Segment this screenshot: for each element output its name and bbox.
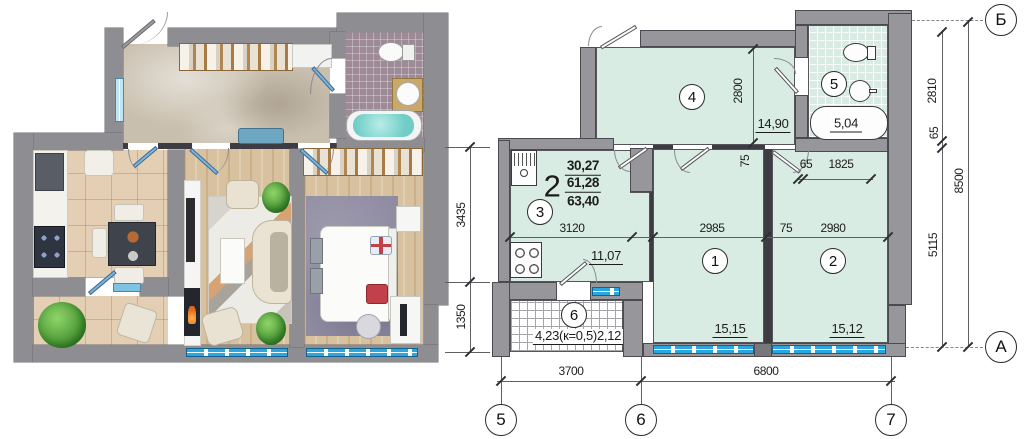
room2-width-label: 2980	[820, 222, 845, 234]
axis-5-circle: 5	[485, 404, 517, 436]
pillow-red	[366, 284, 388, 304]
right-total-dim-label: 8500	[953, 168, 965, 193]
balcony-window	[592, 287, 620, 296]
dimension-line	[470, 147, 471, 352]
room1-number: 1	[702, 248, 728, 274]
right-lower-dim-label: 5115	[927, 233, 939, 257]
dining-chair	[114, 204, 144, 221]
wall	[140, 278, 168, 296]
stool	[356, 314, 381, 339]
wall	[158, 143, 192, 149]
room2-number: 2	[820, 248, 846, 274]
bedroom-bench	[310, 238, 323, 264]
entry-door-leaf	[600, 25, 637, 50]
hallway-window	[115, 78, 124, 122]
wall	[33, 278, 85, 296]
bottom-right-dim-label: 6800	[753, 365, 778, 377]
dimension-line	[942, 30, 943, 347]
room2-window	[772, 345, 886, 354]
bathtub-water	[353, 114, 414, 137]
washbasin-tap	[869, 89, 877, 93]
axis-line-B	[912, 20, 983, 21]
fridge	[35, 153, 64, 191]
room6-number: 6	[561, 302, 587, 328]
hall-wall-label: 75	[739, 155, 751, 168]
nightstand	[396, 206, 421, 232]
room4-number: 4	[679, 84, 705, 110]
fireplace-fire	[188, 306, 196, 324]
wall	[712, 145, 765, 149]
room5-area-label: 5,04	[830, 116, 862, 133]
room3-area-label: 11,07	[589, 249, 623, 265]
desk-tv	[400, 304, 407, 336]
kitchen-width-label: 3120	[559, 222, 584, 234]
stove-icon	[510, 242, 542, 278]
living-plant	[256, 312, 286, 345]
axis-6-circle: 6	[625, 404, 657, 436]
room1-width-label: 2985	[699, 222, 724, 234]
room2-area-label: 15,12	[829, 322, 864, 338]
wall	[623, 300, 643, 357]
bottom-left-dim-label: 3700	[558, 365, 583, 377]
hallway-wardrobe	[180, 44, 292, 70]
wall	[330, 94, 345, 138]
apartment-floorplan-image: 1 2 3 4 5 6 2 30,27 61,28 63,40 14,90 5,…	[0, 0, 1024, 439]
washbasin-icon	[849, 80, 871, 102]
toilet-tank-icon	[867, 46, 876, 60]
toilet	[378, 42, 404, 62]
wall	[14, 133, 33, 362]
dining-chair	[92, 228, 107, 258]
room1-area-label: 15,15	[712, 322, 747, 338]
kitchen-chair	[84, 150, 114, 176]
niche-65-label: 65	[800, 158, 813, 170]
window-pier	[754, 343, 772, 357]
tv	[186, 198, 195, 262]
wall	[498, 138, 614, 150]
wall	[795, 25, 808, 58]
bathroom-sink	[396, 82, 420, 106]
dimension-line	[798, 179, 873, 180]
kitchen-sink-icon	[511, 150, 537, 186]
balcony-plant	[38, 302, 86, 348]
summary-total-area: 63,40	[567, 194, 599, 208]
wall	[640, 30, 797, 47]
summary-usable-area: 61,28	[565, 176, 601, 193]
pillow-flag	[370, 236, 392, 255]
axis-7-circle: 7	[875, 404, 907, 436]
axis-B-circle: Б	[985, 4, 1017, 36]
room1-window	[653, 345, 754, 354]
wall	[653, 145, 673, 149]
wall	[290, 149, 304, 347]
left-lower-dim-label: 1350	[455, 304, 467, 329]
axis-A-circle: А	[985, 331, 1017, 363]
wall	[580, 47, 596, 147]
wall	[888, 13, 912, 305]
dimension-line	[497, 381, 895, 382]
living-plant	[262, 182, 290, 213]
wall	[330, 32, 345, 58]
niche-1825-label: 1825	[828, 158, 853, 170]
wall	[492, 282, 510, 357]
bedroom-window	[306, 348, 418, 357]
partition-wall	[764, 149, 772, 343]
coffee-table	[220, 238, 245, 284]
dining-chair	[114, 267, 144, 284]
dimension-line	[753, 47, 754, 145]
left-upper-dim-label: 3435	[455, 202, 467, 227]
dining-table	[108, 222, 156, 266]
hall-depth-label: 2800	[732, 78, 744, 103]
entry-door-arc	[588, 26, 602, 46]
kitchen-faucet-dot	[520, 169, 528, 177]
wall	[498, 140, 510, 282]
room4-area-label: 14,90	[755, 117, 790, 133]
summary-rooms-count: 2	[544, 171, 561, 202]
toilet-tank	[402, 44, 415, 61]
axis-line-A	[906, 347, 983, 348]
bedroom-bench	[310, 268, 323, 294]
partition-width-label: 75	[780, 222, 793, 234]
dimension-line	[510, 237, 888, 238]
wall	[168, 150, 184, 296]
living-room-window	[186, 348, 288, 357]
stove	[34, 226, 65, 268]
wall	[795, 95, 808, 138]
sofa-cushions	[270, 232, 288, 292]
toilet-icon	[843, 43, 869, 62]
hallway-bench	[238, 128, 284, 144]
dimension-line	[968, 20, 969, 347]
wall	[424, 13, 448, 305]
room1-floor	[653, 149, 764, 343]
right-mid-dim-label: 65	[928, 127, 940, 140]
room5-number: 5	[821, 71, 847, 97]
right-upper-dim-label: 2810	[926, 78, 938, 103]
room6-area-label: 4,23(к=0,5)2,12	[533, 329, 623, 345]
summary-living-area: 30,27	[565, 159, 601, 176]
armchair	[226, 180, 259, 209]
balcony-door-window	[113, 283, 141, 292]
entry-door-arc	[128, 12, 168, 46]
